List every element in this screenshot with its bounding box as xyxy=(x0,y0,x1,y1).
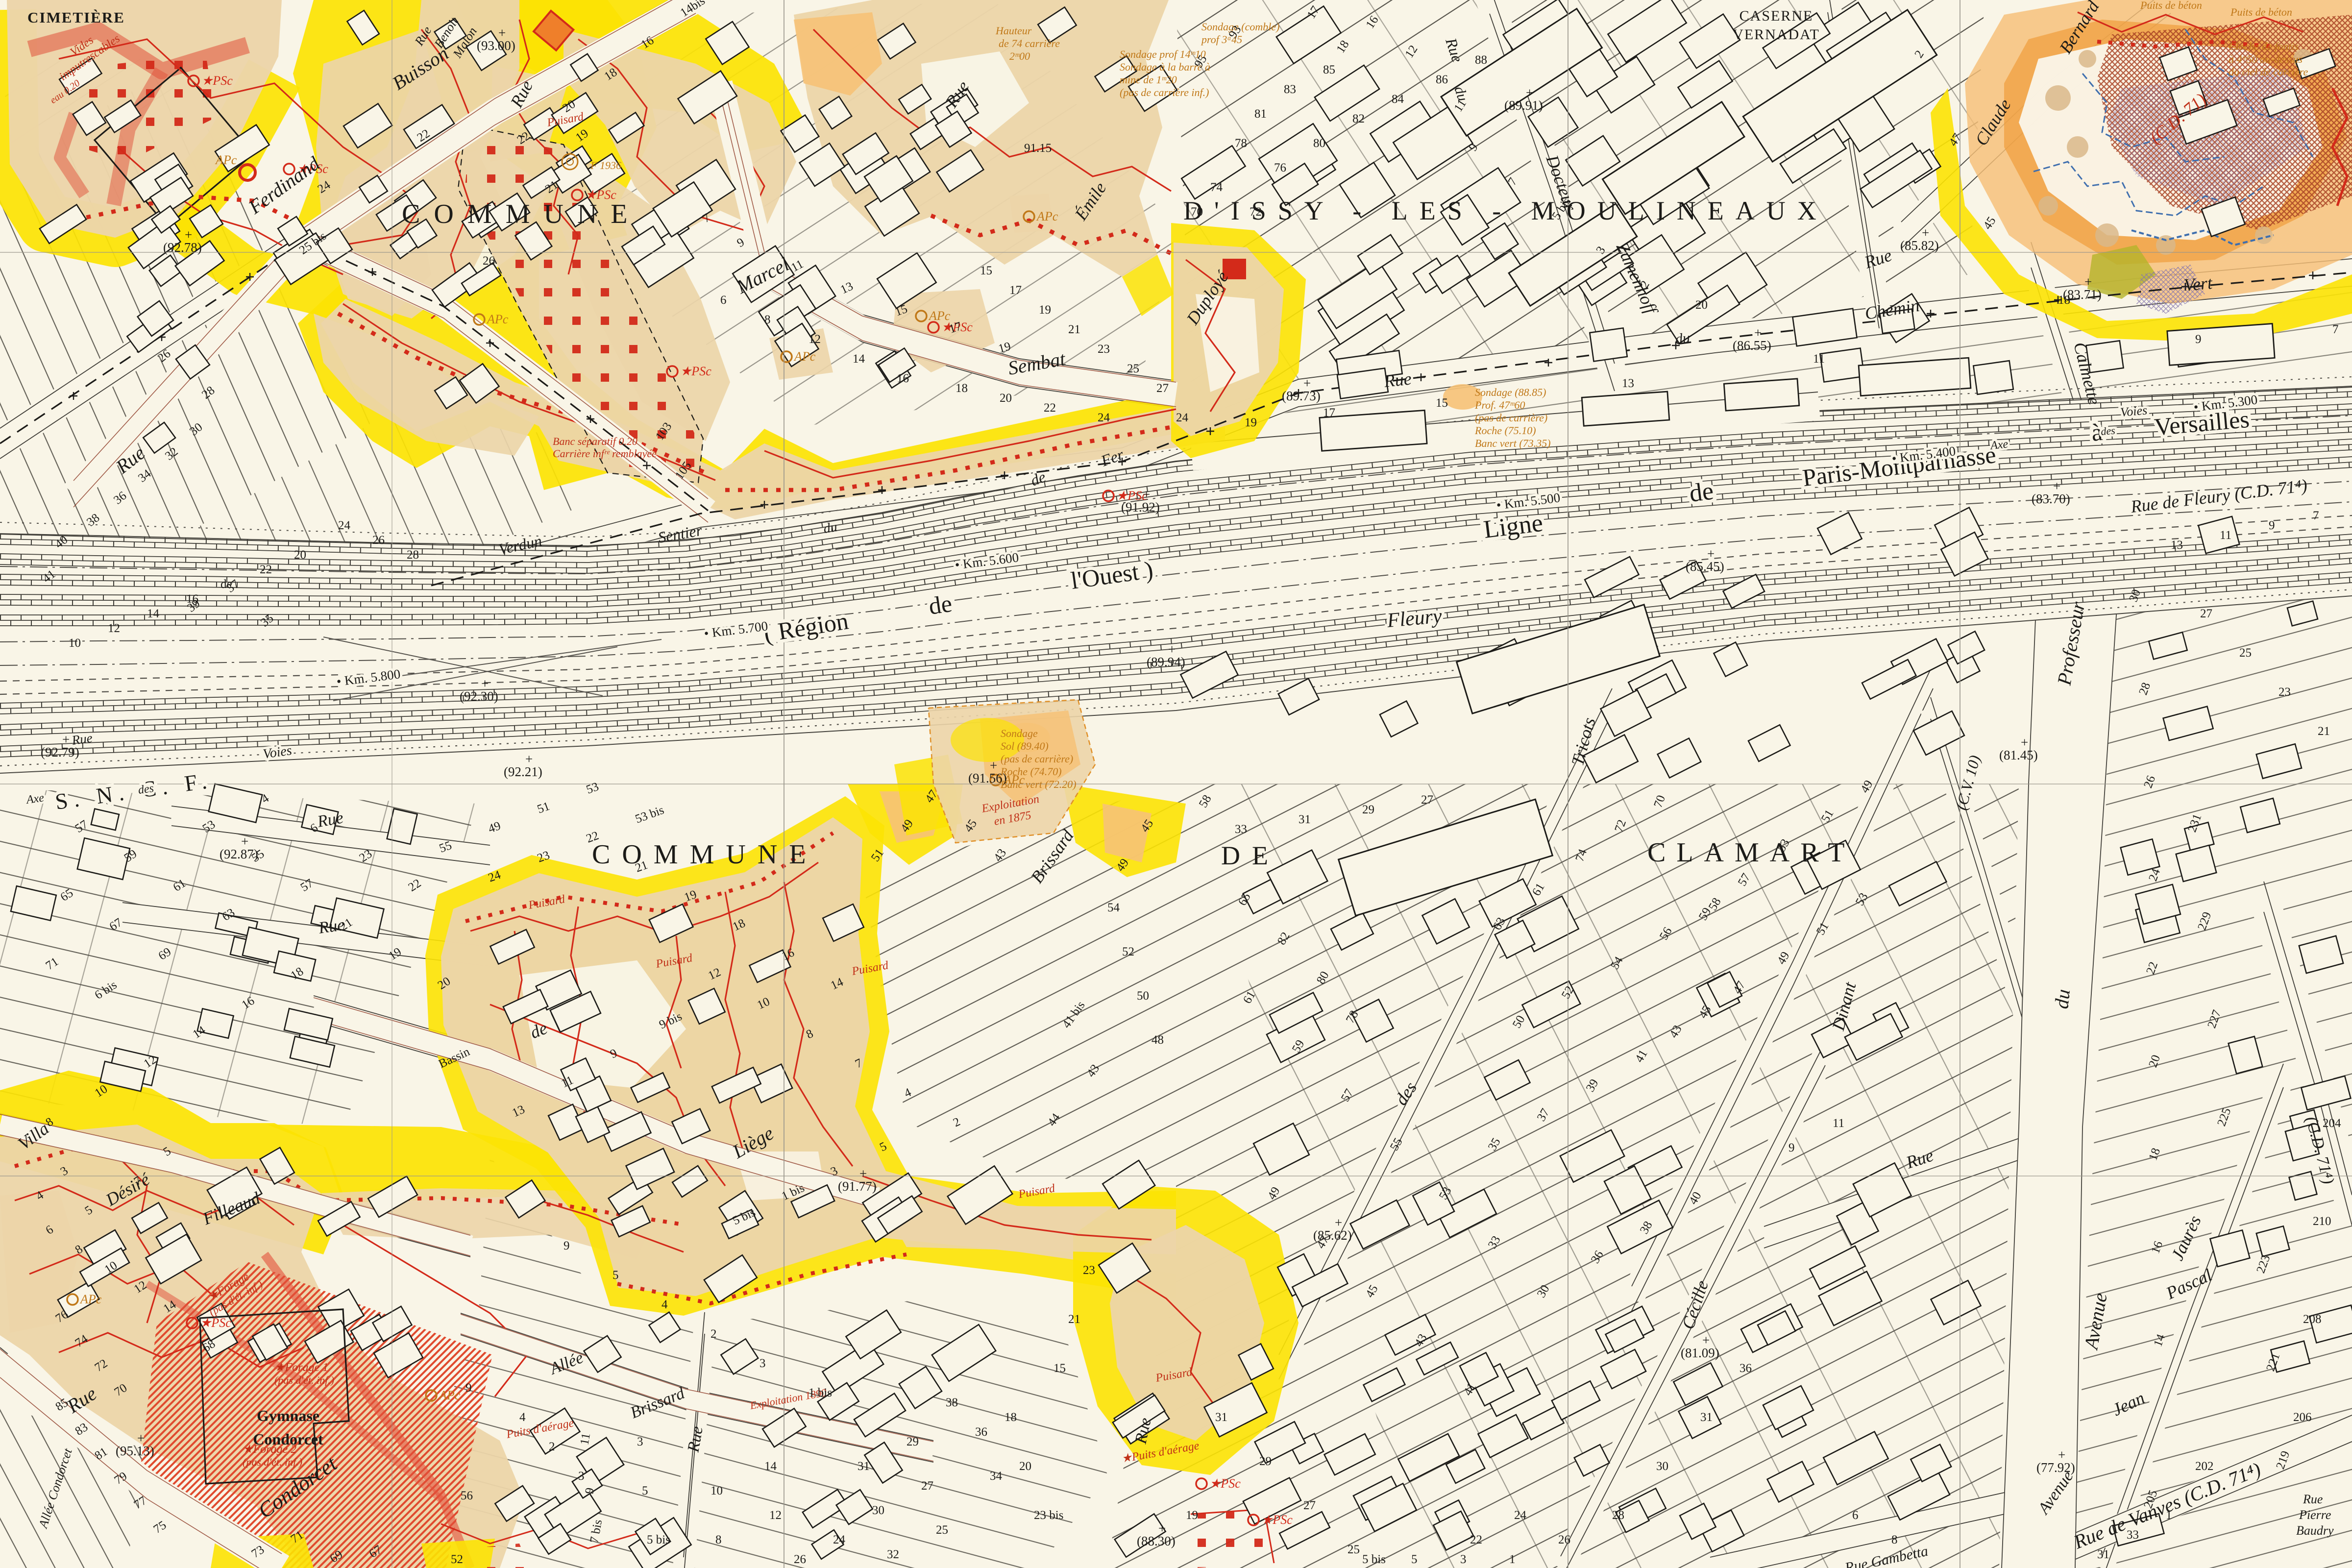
svg-text:26: 26 xyxy=(483,254,495,268)
svg-text:+: + xyxy=(1526,85,1533,100)
svg-text:Axe: Axe xyxy=(24,791,45,807)
svg-text:Gymnase: Gymnase xyxy=(257,1407,319,1424)
svg-text:17: 17 xyxy=(1009,284,1022,297)
svg-text:18: 18 xyxy=(955,382,968,395)
svg-text:19: 19 xyxy=(1039,303,1051,317)
svg-text:(91.77): (91.77) xyxy=(838,1179,877,1194)
svg-text:de: de xyxy=(927,589,954,620)
svg-text:72: 72 xyxy=(1249,205,1262,219)
svg-text:10: 10 xyxy=(69,637,81,650)
svg-text:des: des xyxy=(137,782,154,797)
svg-text:1 bis: 1 bis xyxy=(808,1386,832,1399)
svg-text:25: 25 xyxy=(1347,1543,1360,1556)
svg-text:21: 21 xyxy=(2318,725,2330,738)
svg-text:+: + xyxy=(990,758,997,773)
svg-text:13: 13 xyxy=(2171,539,2183,552)
svg-text:8: 8 xyxy=(1891,1533,1898,1546)
svg-text:52: 52 xyxy=(1122,945,1134,958)
svg-text:25: 25 xyxy=(1127,362,1139,375)
svg-text:(89.94): (89.94) xyxy=(1147,655,1185,669)
svg-text:16: 16 xyxy=(186,592,198,606)
svg-text:+: + xyxy=(62,732,70,747)
svg-text:15: 15 xyxy=(1436,396,1448,410)
svg-text:20: 20 xyxy=(294,548,306,562)
svg-text:86: 86 xyxy=(1436,73,1448,86)
svg-text:Hauteur: Hauteur xyxy=(995,24,1032,37)
svg-text:9: 9 xyxy=(2269,519,2275,532)
svg-text:APc: APc xyxy=(79,1292,102,1306)
svg-text:+: + xyxy=(1702,1333,1710,1347)
svg-text:5: 5 xyxy=(642,1484,648,1497)
svg-text:COMMUNE: COMMUNE xyxy=(402,199,641,229)
svg-text:Pierre: Pierre xyxy=(2299,1508,2331,1522)
svg-text:24: 24 xyxy=(338,519,351,532)
svg-text:12: 12 xyxy=(808,333,821,346)
svg-text:28: 28 xyxy=(1612,1509,1624,1522)
svg-text:23: 23 xyxy=(2278,686,2291,699)
svg-text:de: de xyxy=(1688,477,1715,508)
svg-text:CLAMART: CLAMART xyxy=(1647,837,1855,868)
svg-text:31: 31 xyxy=(857,1460,870,1473)
svg-text:16: 16 xyxy=(897,372,909,385)
svg-text:206: 206 xyxy=(2293,1411,2312,1424)
svg-text:+: + xyxy=(1303,376,1311,391)
svg-text:APc: APc xyxy=(486,312,509,326)
svg-text:Sondage: Sondage xyxy=(1001,727,1038,739)
svg-text:Puits de béton: Puits de béton xyxy=(2140,0,2202,11)
svg-text:34: 34 xyxy=(990,1470,1003,1483)
svg-text:2ᵐ00: 2ᵐ00 xyxy=(1009,50,1030,62)
svg-text:27: 27 xyxy=(2200,607,2212,620)
svg-text:APc: APc xyxy=(1036,209,1058,223)
svg-text:+: + xyxy=(1707,546,1715,561)
svg-text:APc: APc xyxy=(928,309,951,323)
svg-text:91.15: 91.15 xyxy=(1024,142,1052,155)
svg-text:14: 14 xyxy=(764,1460,777,1473)
svg-text:5 bis: 5 bis xyxy=(647,1533,670,1546)
svg-text:APc: APc xyxy=(438,1388,461,1402)
svg-text:3: 3 xyxy=(1460,1553,1467,1566)
svg-text:Roche (74.70): Roche (74.70) xyxy=(1000,765,1062,778)
svg-text:38: 38 xyxy=(946,1396,958,1409)
svg-text:56: 56 xyxy=(461,1489,473,1502)
svg-text:25: 25 xyxy=(936,1523,948,1537)
svg-text:88: 88 xyxy=(1475,53,1487,67)
svg-text:33: 33 xyxy=(1235,823,1247,836)
svg-text:mine de 1ᵐ20: mine de 1ᵐ20 xyxy=(1120,73,1177,86)
svg-text:29: 29 xyxy=(1259,1455,1272,1468)
svg-text:24: 24 xyxy=(1176,411,1189,424)
svg-text:★Forage 2: ★Forage 2 xyxy=(243,1443,296,1456)
svg-text:84: 84 xyxy=(1392,93,1404,106)
svg-text:★PSc: ★PSc xyxy=(1209,1476,1241,1491)
svg-text:Cloche de fontis: Cloche de fontis xyxy=(2229,40,2299,52)
svg-text:à 4ᵐ50 au-dessus: à 4ᵐ50 au-dessus xyxy=(2229,53,2303,65)
svg-text:14: 14 xyxy=(147,607,160,620)
svg-text:22: 22 xyxy=(1044,401,1056,415)
svg-text:27: 27 xyxy=(1303,1499,1316,1512)
svg-text:(81.09): (81.09) xyxy=(1681,1346,1719,1360)
svg-text:(pas de carrière inf.): (pas de carrière inf.) xyxy=(1120,86,1209,98)
svg-text:12: 12 xyxy=(769,1509,782,1522)
svg-text:Banc séparatif 0.20: Banc séparatif 0.20 xyxy=(553,435,637,447)
svg-text:9: 9 xyxy=(1788,1141,1795,1154)
svg-text:(89.91): (89.91) xyxy=(1504,98,1543,113)
svg-text:24: 24 xyxy=(833,1533,846,1546)
svg-text:83: 83 xyxy=(1284,83,1296,96)
svg-text:24: 24 xyxy=(1098,411,1110,424)
svg-text:de 74 carrière: de 74 carrière xyxy=(999,37,1060,49)
svg-text:11: 11 xyxy=(578,1432,593,1446)
svg-text:(pas d'ét. inf.): (pas d'ét. inf.) xyxy=(274,1374,334,1386)
svg-text:+: + xyxy=(241,834,248,849)
svg-text:(95.13): (95.13) xyxy=(116,1444,154,1458)
svg-text:APc: APc xyxy=(793,349,816,364)
svg-text:80: 80 xyxy=(1313,137,1325,150)
svg-text:19: 19 xyxy=(1186,1509,1198,1522)
svg-text:(93.00): (93.00) xyxy=(477,38,515,53)
svg-text:11: 11 xyxy=(1813,352,1825,366)
svg-text:29: 29 xyxy=(1362,803,1374,816)
svg-text:7: 7 xyxy=(2332,323,2339,336)
svg-text:31: 31 xyxy=(1298,813,1311,826)
svg-text:29: 29 xyxy=(906,1435,919,1448)
svg-text:9: 9 xyxy=(465,1381,472,1395)
svg-text:CASERNE: CASERNE xyxy=(1739,8,1813,24)
svg-text:27: 27 xyxy=(921,1479,933,1493)
svg-text:14: 14 xyxy=(853,352,865,366)
svg-text:2: 2 xyxy=(710,1327,717,1341)
svg-text:15: 15 xyxy=(980,264,992,277)
svg-text:18: 18 xyxy=(1004,1411,1017,1424)
svg-text:20: 20 xyxy=(1695,298,1708,312)
svg-text:Puits de béton: Puits de béton xyxy=(2230,6,2292,18)
svg-text:+: + xyxy=(1168,642,1176,657)
svg-text:★PSc: ★PSc xyxy=(201,73,233,88)
svg-text:9: 9 xyxy=(563,1239,570,1252)
svg-text:76: 76 xyxy=(1274,161,1286,174)
svg-text:8: 8 xyxy=(715,1533,722,1546)
svg-text:+: + xyxy=(1754,325,1762,340)
svg-text:12: 12 xyxy=(108,622,120,635)
svg-text:7: 7 xyxy=(2313,509,2319,522)
svg-text:(85.82): (85.82) xyxy=(1900,238,1939,253)
svg-text:204: 204 xyxy=(2323,1117,2341,1130)
svg-text:★PSc: ★PSc xyxy=(680,364,711,378)
svg-text:Baudry: Baudry xyxy=(2296,1523,2334,1538)
svg-text:23: 23 xyxy=(1083,1264,1095,1277)
svg-text:25: 25 xyxy=(2239,646,2252,660)
svg-text:Banc vert (73.35): Banc vert (73.35) xyxy=(1475,437,1551,449)
svg-text:36: 36 xyxy=(975,1425,987,1439)
svg-text:3: 3 xyxy=(637,1435,643,1448)
svg-text:31: 31 xyxy=(1215,1411,1227,1424)
svg-text:+: + xyxy=(1335,1215,1342,1230)
svg-text:des: des xyxy=(2100,424,2115,438)
svg-text:23: 23 xyxy=(1098,343,1110,356)
svg-text:50: 50 xyxy=(1137,989,1149,1003)
svg-text:23 bis: 23 bis xyxy=(1034,1509,1063,1522)
svg-text:(88.30): (88.30) xyxy=(1137,1534,1176,1548)
svg-text:Sondage (88.85): Sondage (88.85) xyxy=(1475,386,1546,398)
svg-text:+: + xyxy=(2058,1447,2065,1462)
svg-text:210: 210 xyxy=(2313,1215,2331,1228)
svg-text:17: 17 xyxy=(1323,406,1335,419)
svg-text:(85.45): (85.45) xyxy=(1686,559,1724,574)
svg-text:208: 208 xyxy=(2303,1313,2322,1326)
svg-text:Prof. 47ᵐ60: Prof. 47ᵐ60 xyxy=(1474,399,1525,411)
svg-text:24: 24 xyxy=(1514,1509,1527,1522)
svg-text:26: 26 xyxy=(794,1553,806,1566)
svg-text:21: 21 xyxy=(1068,323,1080,336)
svg-text:52: 52 xyxy=(451,1553,463,1566)
svg-text:22: 22 xyxy=(1470,1533,1482,1546)
svg-text:5 bis: 5 bis xyxy=(1362,1553,1386,1566)
svg-text:85: 85 xyxy=(1323,63,1335,76)
svg-text:(81.45): (81.45) xyxy=(1999,748,2038,762)
svg-text:(92.30): (92.30) xyxy=(460,689,498,704)
svg-text:20: 20 xyxy=(1019,1460,1031,1473)
svg-text:Carrière infʳᵉ remblayée: Carrière infʳᵉ remblayée xyxy=(553,447,657,460)
svg-text:27: 27 xyxy=(1421,793,1433,807)
svg-text:8: 8 xyxy=(764,313,771,326)
svg-text:70: 70 xyxy=(1191,205,1203,219)
svg-text:Vert: Vert xyxy=(2183,273,2213,295)
svg-text:du: du xyxy=(822,519,838,537)
svg-text:Roche (75.10): Roche (75.10) xyxy=(1474,424,1536,437)
svg-text:15: 15 xyxy=(1053,1362,1066,1375)
svg-text:de: de xyxy=(220,578,232,591)
svg-text:Rue: Rue xyxy=(2303,1492,2323,1506)
svg-text:(pas d'ét. inf.): (pas d'ét. inf.) xyxy=(243,1456,302,1468)
svg-text:Sol (89.40): Sol (89.40) xyxy=(1001,740,1049,752)
svg-text:CIMETIÈRE: CIMETIÈRE xyxy=(27,9,125,26)
svg-text:30: 30 xyxy=(872,1504,884,1517)
svg-text:+: + xyxy=(137,1431,145,1445)
svg-text:13: 13 xyxy=(1622,377,1634,390)
svg-text:(92.21): (92.21) xyxy=(504,764,542,779)
svg-text:+: + xyxy=(525,752,533,766)
svg-text:74: 74 xyxy=(1210,181,1223,194)
svg-text:COMMUNE: COMMUNE xyxy=(592,839,817,870)
svg-text:Rue: Rue xyxy=(71,730,94,748)
svg-text:22: 22 xyxy=(260,563,272,576)
svg-text:6: 6 xyxy=(720,294,727,307)
svg-text:Voies: Voies xyxy=(2120,403,2148,419)
svg-text:18: 18 xyxy=(2058,294,2070,307)
svg-text:5: 5 xyxy=(1411,1553,1418,1566)
svg-text:★PSc: ★PSc xyxy=(200,1316,231,1330)
svg-text:Axe: Axe xyxy=(1989,438,2009,452)
svg-text:202: 202 xyxy=(2195,1460,2214,1473)
svg-text:(89.73): (89.73) xyxy=(1282,389,1321,403)
svg-text:10: 10 xyxy=(710,1484,723,1497)
svg-text:48: 48 xyxy=(1151,1033,1164,1047)
svg-text:4: 4 xyxy=(519,1411,526,1424)
svg-text:du: du xyxy=(1674,330,1690,347)
svg-text:+: + xyxy=(1158,1521,1166,1536)
svg-text:1: 1 xyxy=(1509,1553,1516,1566)
svg-text:+: + xyxy=(859,1166,867,1181)
svg-text:36: 36 xyxy=(1739,1362,1752,1375)
svg-text:+: + xyxy=(481,676,489,691)
svg-text:+: + xyxy=(1143,487,1150,502)
svg-text:6: 6 xyxy=(1852,1509,1859,1522)
svg-text:APc: APc xyxy=(215,153,237,167)
svg-text:11: 11 xyxy=(2220,529,2231,542)
svg-text:★PSc: ★PSc xyxy=(1261,1513,1293,1527)
svg-text:+: + xyxy=(2021,735,2028,750)
svg-text:F 1936: F 1936 xyxy=(590,159,621,171)
svg-text:3: 3 xyxy=(759,1357,766,1370)
svg-text:31: 31 xyxy=(1700,1411,1713,1424)
svg-text:(91.92): (91.92) xyxy=(1121,500,1160,514)
svg-text:(83.70): (83.70) xyxy=(2032,491,2070,506)
svg-text:20: 20 xyxy=(1000,392,1012,405)
svg-text:(pas de carrière): (pas de carrière) xyxy=(1475,412,1547,424)
svg-text:26: 26 xyxy=(1558,1533,1570,1546)
svg-text:+: + xyxy=(1922,225,1929,240)
svg-text:Fleury: Fleury xyxy=(1386,605,1443,632)
svg-text:1: 1 xyxy=(2166,1509,2172,1522)
svg-text:32: 32 xyxy=(887,1548,899,1561)
svg-text:Rue: Rue xyxy=(1383,368,1413,391)
svg-text:9: 9 xyxy=(2195,333,2202,346)
svg-text:+: + xyxy=(498,25,506,40)
svg-text:26: 26 xyxy=(372,534,385,547)
svg-text:19: 19 xyxy=(1245,416,1257,429)
svg-text:4: 4 xyxy=(661,1298,668,1311)
svg-text:11: 11 xyxy=(1833,1117,1844,1130)
svg-text:30: 30 xyxy=(1656,1460,1668,1473)
svg-text:+: + xyxy=(2084,274,2092,289)
svg-text:du ciel de carrière: du ciel de carrière xyxy=(2229,66,2308,78)
svg-text:Banc vert (72.20): Banc vert (72.20) xyxy=(1001,778,1077,790)
svg-text:3: 3 xyxy=(578,1470,585,1483)
svg-text:2: 2 xyxy=(549,1440,555,1453)
svg-text:82: 82 xyxy=(1352,112,1365,125)
svg-text:★Forage 1: ★Forage 1 xyxy=(274,1361,328,1374)
svg-text:33: 33 xyxy=(2127,1528,2139,1542)
svg-text:21: 21 xyxy=(1068,1313,1080,1326)
svg-text:+: + xyxy=(2053,479,2060,493)
svg-text:(92.78): (92.78) xyxy=(163,240,202,255)
svg-text:Sondage prof 14ᵐ10: Sondage prof 14ᵐ10 xyxy=(1120,48,1206,60)
svg-text:28: 28 xyxy=(407,548,419,562)
svg-text:+: + xyxy=(185,227,192,242)
svg-text:5: 5 xyxy=(612,1269,619,1282)
svg-text:81: 81 xyxy=(1254,107,1267,121)
svg-text:VERNADAT: VERNADAT xyxy=(1733,26,1820,43)
svg-text:DE: DE xyxy=(1221,841,1280,870)
svg-text:31: 31 xyxy=(2097,1548,2109,1561)
svg-text:27: 27 xyxy=(1156,382,1169,395)
svg-text:(86.55): (86.55) xyxy=(1733,338,1771,353)
svg-text:78: 78 xyxy=(1235,137,1247,150)
svg-text:(pas de carrière): (pas de carrière) xyxy=(1001,753,1073,765)
svg-text:D'ISSY - LES - MOULINEAUX: D'ISSY - LES - MOULINEAUX xyxy=(1183,196,1828,225)
svg-text:54: 54 xyxy=(1107,901,1120,914)
svg-text:du: du xyxy=(2050,988,2074,1009)
